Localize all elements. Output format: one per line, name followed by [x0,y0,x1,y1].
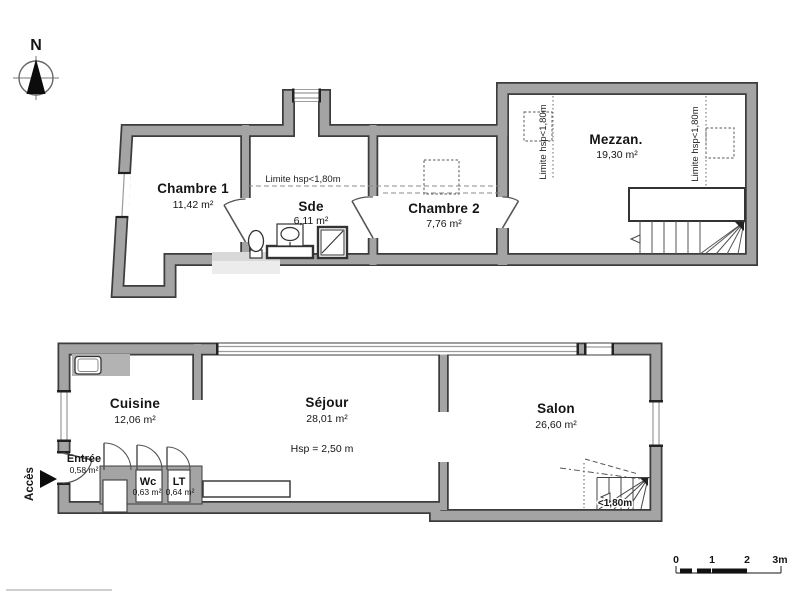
room-area-salon: 26,60 m² [535,419,577,431]
room-area-wc: 0,63 m² [133,487,162,497]
room-area-sde: 6,11 m² [294,215,329,227]
scale-dash-2 [697,569,711,574]
limite-hsp-label: Limite hsp<1,80m [265,174,340,185]
north-compass: N [13,37,59,100]
access-arrow-icon [40,470,57,488]
room-area-entree: 0,58 m² [70,465,99,475]
room-area-chambre1: 11,42 m² [173,199,214,211]
shower-icon [318,227,347,258]
ceiling-height-note: Hsp = 2,50 m [291,443,354,455]
scale-tick-1: 1 [709,554,715,566]
scale-tick-0: 0 [673,554,679,566]
room-label-chambre1: Chambre 1 [157,181,229,196]
kitchen-sink-icon [72,354,130,376]
room-label-entree: Entrée [67,453,101,465]
window-salon-right [649,400,663,447]
north-label: N [30,37,42,54]
wall-niche [103,480,127,512]
access-marker: Accès [24,467,57,501]
stair-height-note: <1,80m [598,498,632,509]
room-labels: Chambre 1 11,42 m² Sde 6,11 m² Chambre 2… [67,104,701,509]
north-arrow-icon [27,59,46,94]
window-salon-top [584,343,614,355]
scale-tick-3: 3m [772,554,787,566]
room-area-mezzanine: 19,30 m² [596,149,638,161]
room-area-chambre2: 7,76 m² [426,218,462,230]
scale-solid-bar [712,569,747,574]
stairs-mezzanine-icon [629,188,745,254]
access-label: Accès [24,467,36,501]
room-label-salon: Salon [537,401,575,416]
floor-plan-page: N [0,0,800,600]
low-wall-patch-light [212,261,280,274]
limite-hsp-label-right: Limite hsp<1,80m [690,106,701,181]
toilet-icon [249,231,264,259]
sink-icon [267,224,313,258]
scale-dash-1 [680,569,692,574]
room-label-sde: Sde [298,199,324,214]
room-label-mezzanine: Mezzan. [589,132,642,147]
room-area-lt: 0,64 m² [166,487,195,497]
cabinet [203,481,290,497]
room-label-sejour: Séjour [305,395,349,410]
limite-hsp-label-left: Limite hsp<1,80m [538,104,549,179]
floor-plan-drawing: N [0,0,800,600]
door-chambre1 [224,198,252,242]
room-area-cuisine: 12,06 m² [114,414,156,426]
room-area-sejour: 28,01 m² [306,413,348,425]
window-chambre1-left [116,173,131,217]
window-sejour-top [216,343,579,355]
scale-bar: 0 1 2 3m [673,554,788,574]
velux-dashed-square-mezz-right [706,128,734,158]
room-label-cuisine: Cuisine [110,396,160,411]
velux-dashed-square-chambre2 [424,160,459,194]
door-mezzanine [496,197,519,228]
door-sde [352,196,380,238]
window-chimney [292,89,321,103]
window-cuisine-left [57,390,71,442]
scale-tick-2: 2 [744,554,750,566]
room-label-chambre2: Chambre 2 [408,201,480,216]
